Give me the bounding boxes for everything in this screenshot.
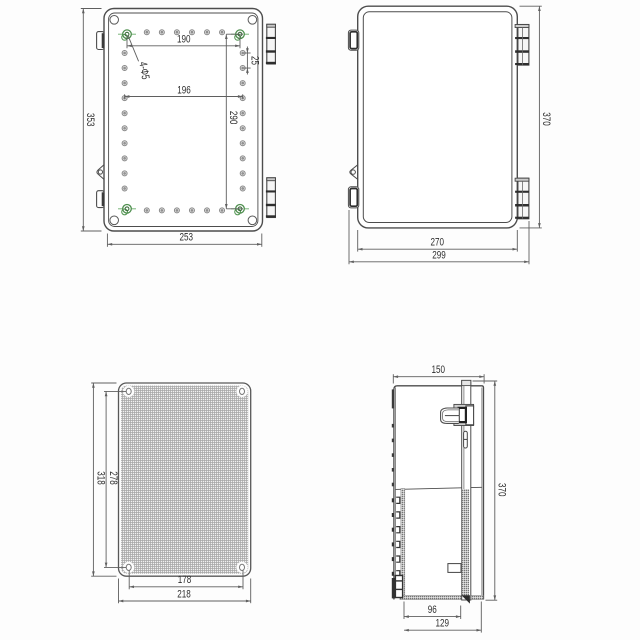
svg-text:178: 178 bbox=[178, 574, 192, 586]
svg-text:150: 150 bbox=[432, 364, 446, 376]
svg-text:218: 218 bbox=[177, 589, 191, 601]
svg-text:129: 129 bbox=[435, 618, 449, 630]
svg-text:290: 290 bbox=[227, 111, 239, 125]
svg-text:196: 196 bbox=[177, 84, 191, 96]
svg-text:270: 270 bbox=[431, 237, 445, 249]
svg-text:253: 253 bbox=[180, 232, 194, 244]
svg-text:299: 299 bbox=[432, 249, 446, 261]
svg-text:25: 25 bbox=[249, 56, 261, 65]
svg-text:190: 190 bbox=[177, 34, 191, 46]
svg-text:353: 353 bbox=[84, 113, 96, 127]
svg-text:278: 278 bbox=[107, 471, 119, 485]
svg-text:96: 96 bbox=[428, 604, 437, 616]
svg-text:370: 370 bbox=[496, 483, 508, 497]
svg-text:370: 370 bbox=[540, 112, 552, 126]
svg-text:318: 318 bbox=[94, 471, 106, 485]
